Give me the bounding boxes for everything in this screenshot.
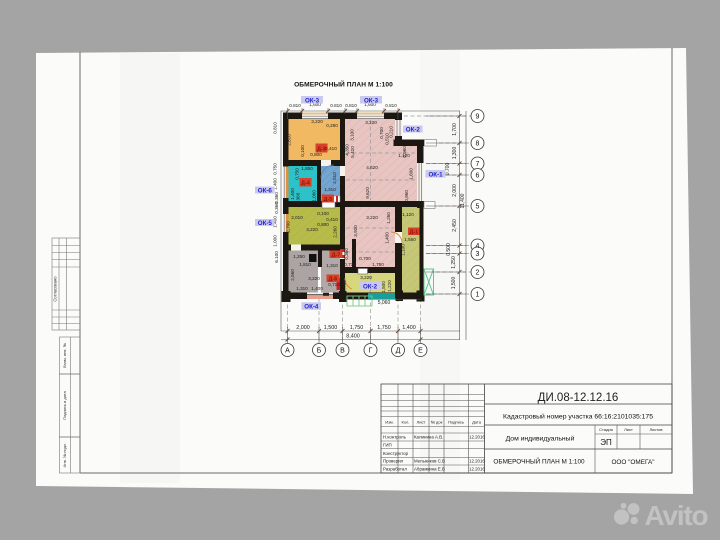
svg-text:2,000: 2,000	[452, 184, 458, 197]
svg-text:ОК-3: ОК-3	[364, 97, 379, 104]
svg-text:0,360: 0,360	[344, 248, 349, 260]
svg-text:Кадастровый номер участка 66:1: Кадастровый номер участка 66:16:2101035:…	[503, 413, 653, 421]
svg-text:1,400: 1,400	[402, 325, 416, 331]
svg-text:Д-7: Д-7	[332, 253, 341, 259]
svg-text:1,400: 1,400	[385, 232, 390, 244]
svg-text:0,770: 0,770	[344, 262, 356, 267]
svg-text:2,000: 2,000	[296, 325, 310, 331]
svg-text:Согласовано: Согласовано	[53, 276, 58, 302]
svg-text:3,220: 3,220	[308, 276, 320, 281]
svg-text:1,700: 1,700	[452, 123, 458, 136]
svg-text:1,500: 1,500	[324, 325, 338, 331]
svg-text:Конструктор: Конструктор	[383, 451, 409, 456]
svg-text:Инв. № подл.: Инв. № подл.	[62, 443, 67, 468]
svg-text:0,750: 0,750	[295, 168, 300, 180]
svg-text:3: 3	[476, 251, 480, 258]
svg-text:Н.контроль: Н.контроль	[383, 435, 407, 440]
svg-text:1,400: 1,400	[290, 188, 295, 200]
svg-text:Стадия: Стадия	[599, 427, 613, 432]
svg-text:Разработал: Разработал	[383, 467, 407, 472]
svg-text:5: 5	[476, 204, 480, 211]
svg-text:0.700: 0.700	[445, 163, 451, 176]
svg-text:0.360: 0.360	[274, 192, 279, 204]
svg-text:0.360: 0.360	[274, 202, 279, 214]
svg-text:Д-4: Д-4	[301, 181, 310, 187]
svg-text:0.810: 0.810	[345, 103, 357, 108]
svg-text:1,300: 1,300	[452, 147, 458, 160]
svg-text:1,750: 1,750	[372, 262, 384, 267]
svg-text:1,260: 1,260	[386, 212, 391, 224]
svg-text:ОК-6: ОК-6	[258, 187, 273, 194]
svg-text:2,260: 2,260	[333, 226, 338, 238]
svg-text:2,810: 2,810	[287, 134, 292, 146]
svg-text:2,010: 2,010	[291, 215, 303, 220]
svg-text:1,250: 1,250	[293, 254, 305, 259]
svg-text:1,310: 1,310	[296, 286, 308, 291]
svg-text:4,620: 4,620	[366, 165, 378, 170]
svg-text:Г: Г	[369, 348, 373, 355]
svg-text:0,410: 0,410	[325, 146, 337, 151]
svg-text:0,210: 0,210	[389, 126, 394, 138]
svg-text:1,310: 1,310	[324, 187, 336, 192]
svg-text:А: А	[285, 348, 290, 355]
svg-text:0,960: 0,960	[404, 190, 409, 202]
svg-text:1.000: 1.000	[273, 235, 278, 247]
svg-text:Дата: Дата	[472, 420, 482, 425]
svg-text:3,100: 3,100	[350, 129, 355, 141]
svg-text:2,450: 2,450	[452, 219, 458, 232]
svg-text:Абрамкина Е.В: Абрамкина Е.В	[414, 467, 445, 472]
svg-text:0,960: 0,960	[402, 146, 407, 158]
svg-text:11,400: 11,400	[460, 193, 466, 208]
svg-text:0,100: 0,100	[317, 211, 329, 216]
svg-text:0.810: 0.810	[330, 103, 342, 108]
svg-text:0,700: 0,700	[359, 256, 371, 261]
svg-text:3,220: 3,220	[365, 120, 377, 125]
svg-text:6: 6	[476, 173, 480, 180]
svg-text:0,100: 0,100	[300, 145, 305, 157]
svg-text:0,360: 0,360	[296, 192, 301, 204]
svg-text:Листов: Листов	[650, 427, 663, 432]
svg-text:7: 7	[476, 161, 480, 168]
svg-text:0,960: 0,960	[342, 280, 347, 292]
svg-text:Б: Б	[317, 348, 322, 355]
svg-text:0.810: 0.810	[273, 122, 278, 134]
svg-text:0,800: 0,800	[310, 152, 322, 157]
svg-text:Дом индивидуальный: Дом индивидуальный	[506, 435, 575, 443]
svg-text:1,100: 1,100	[401, 244, 406, 256]
svg-text:12.2016: 12.2016	[469, 467, 485, 472]
svg-text:12.2016: 12.2016	[469, 459, 485, 464]
svg-text:0.810: 0.810	[385, 103, 397, 108]
svg-text:Д: Д	[396, 348, 401, 355]
svg-text:ООО "ОМЕГА": ООО "ОМЕГА"	[611, 459, 654, 466]
svg-text:3,920: 3,920	[353, 225, 358, 237]
svg-text:1: 1	[476, 292, 480, 299]
svg-text:4: 4	[476, 243, 480, 250]
svg-text:1,500: 1,500	[451, 277, 457, 290]
svg-text:Мельников С.В: Мельников С.В	[414, 459, 445, 464]
svg-text:Калинина А.В.: Калинина А.В.	[414, 435, 443, 440]
svg-text:ДИ.08-12.12.16: ДИ.08-12.12.16	[538, 392, 619, 404]
svg-text:8: 8	[476, 141, 480, 148]
svg-text:0.810: 0.810	[289, 103, 301, 108]
svg-text:Изм.: Изм.	[385, 420, 394, 425]
svg-text:2,510: 2,510	[332, 172, 337, 184]
svg-text:1,560: 1,560	[404, 237, 416, 242]
svg-text:1,400: 1,400	[311, 286, 323, 291]
svg-text:12.2016: 12.2016	[469, 435, 485, 440]
svg-text:ЭП: ЭП	[600, 438, 612, 447]
svg-text:ОК-2: ОК-2	[406, 126, 421, 133]
svg-text:2: 2	[476, 270, 480, 277]
svg-text:Д-5: Д-5	[324, 197, 333, 203]
svg-text:№ док: № док	[431, 420, 443, 425]
svg-text:Avito: Avito	[645, 500, 709, 531]
svg-text:1,500: 1,500	[381, 281, 386, 293]
svg-text:1,250: 1,250	[451, 256, 457, 269]
svg-text:9,620: 9,620	[365, 187, 370, 199]
svg-text:1,750: 1,750	[350, 325, 364, 331]
svg-text:8,400: 8,400	[346, 334, 360, 340]
svg-text:1,120: 1,120	[402, 212, 414, 217]
svg-text:0,710: 0,710	[328, 282, 340, 287]
svg-text:ОК-3: ОК-3	[305, 97, 320, 104]
svg-text:ОБМЕРОЧНЫЙ ПЛАН М 1:100: ОБМЕРОЧНЫЙ ПЛАН М 1:100	[493, 457, 585, 466]
svg-text:ОК-4: ОК-4	[304, 304, 319, 311]
svg-text:3,220: 3,220	[311, 119, 323, 124]
svg-text:3,220: 3,220	[306, 227, 318, 232]
svg-text:Подпись: Подпись	[448, 420, 464, 425]
svg-text:0.500: 0.500	[446, 243, 452, 256]
svg-text:ОК-1: ОК-1	[428, 171, 443, 178]
svg-text:В: В	[340, 348, 345, 355]
svg-text:2,700: 2,700	[286, 221, 291, 233]
svg-text:1,310: 1,310	[326, 263, 338, 268]
svg-text:Лист: Лист	[624, 427, 633, 432]
svg-text:1,850: 1,850	[301, 166, 313, 171]
svg-text:3,220: 3,220	[366, 215, 378, 220]
svg-text:4,350: 4,350	[345, 144, 350, 156]
svg-text:Проверил: Проверил	[383, 459, 404, 464]
svg-text:0.750: 0.750	[273, 163, 278, 175]
svg-text:5,420: 5,420	[350, 146, 355, 158]
svg-text:0,700: 0,700	[379, 127, 384, 139]
svg-text:1,810: 1,810	[299, 262, 311, 267]
svg-text:Подпись и дата: Подпись и дата	[62, 390, 67, 420]
svg-text:Кол.: Кол.	[402, 420, 410, 425]
svg-text:3,220: 3,220	[360, 275, 372, 280]
svg-text:ОК-2: ОК-2	[363, 283, 378, 290]
svg-text:0,800: 0,800	[317, 222, 329, 227]
svg-text:6.100: 6.100	[274, 251, 279, 263]
svg-text:2,560: 2,560	[290, 269, 295, 281]
svg-text:Е: Е	[418, 348, 423, 355]
svg-text:1,060: 1,060	[312, 190, 317, 202]
svg-text:1,600: 1,600	[409, 168, 414, 180]
svg-text:5,060: 5,060	[378, 300, 391, 306]
svg-text:Д-1: Д-1	[409, 230, 418, 236]
svg-text:0,280: 0,280	[326, 123, 338, 128]
svg-text:9: 9	[476, 114, 480, 121]
svg-text:ГИП: ГИП	[383, 443, 392, 448]
svg-text:ОБМЕРОЧНЫЙ ПЛАН М 1:100: ОБМЕРОЧНЫЙ ПЛАН М 1:100	[294, 80, 393, 89]
svg-text:1,220: 1,220	[387, 280, 392, 292]
svg-text:1,750: 1,750	[377, 325, 391, 331]
svg-text:Лист: Лист	[417, 420, 426, 425]
svg-text:Взам. инв. №: Взам. инв. №	[62, 343, 67, 368]
svg-text:ОК-5: ОК-5	[258, 220, 273, 227]
